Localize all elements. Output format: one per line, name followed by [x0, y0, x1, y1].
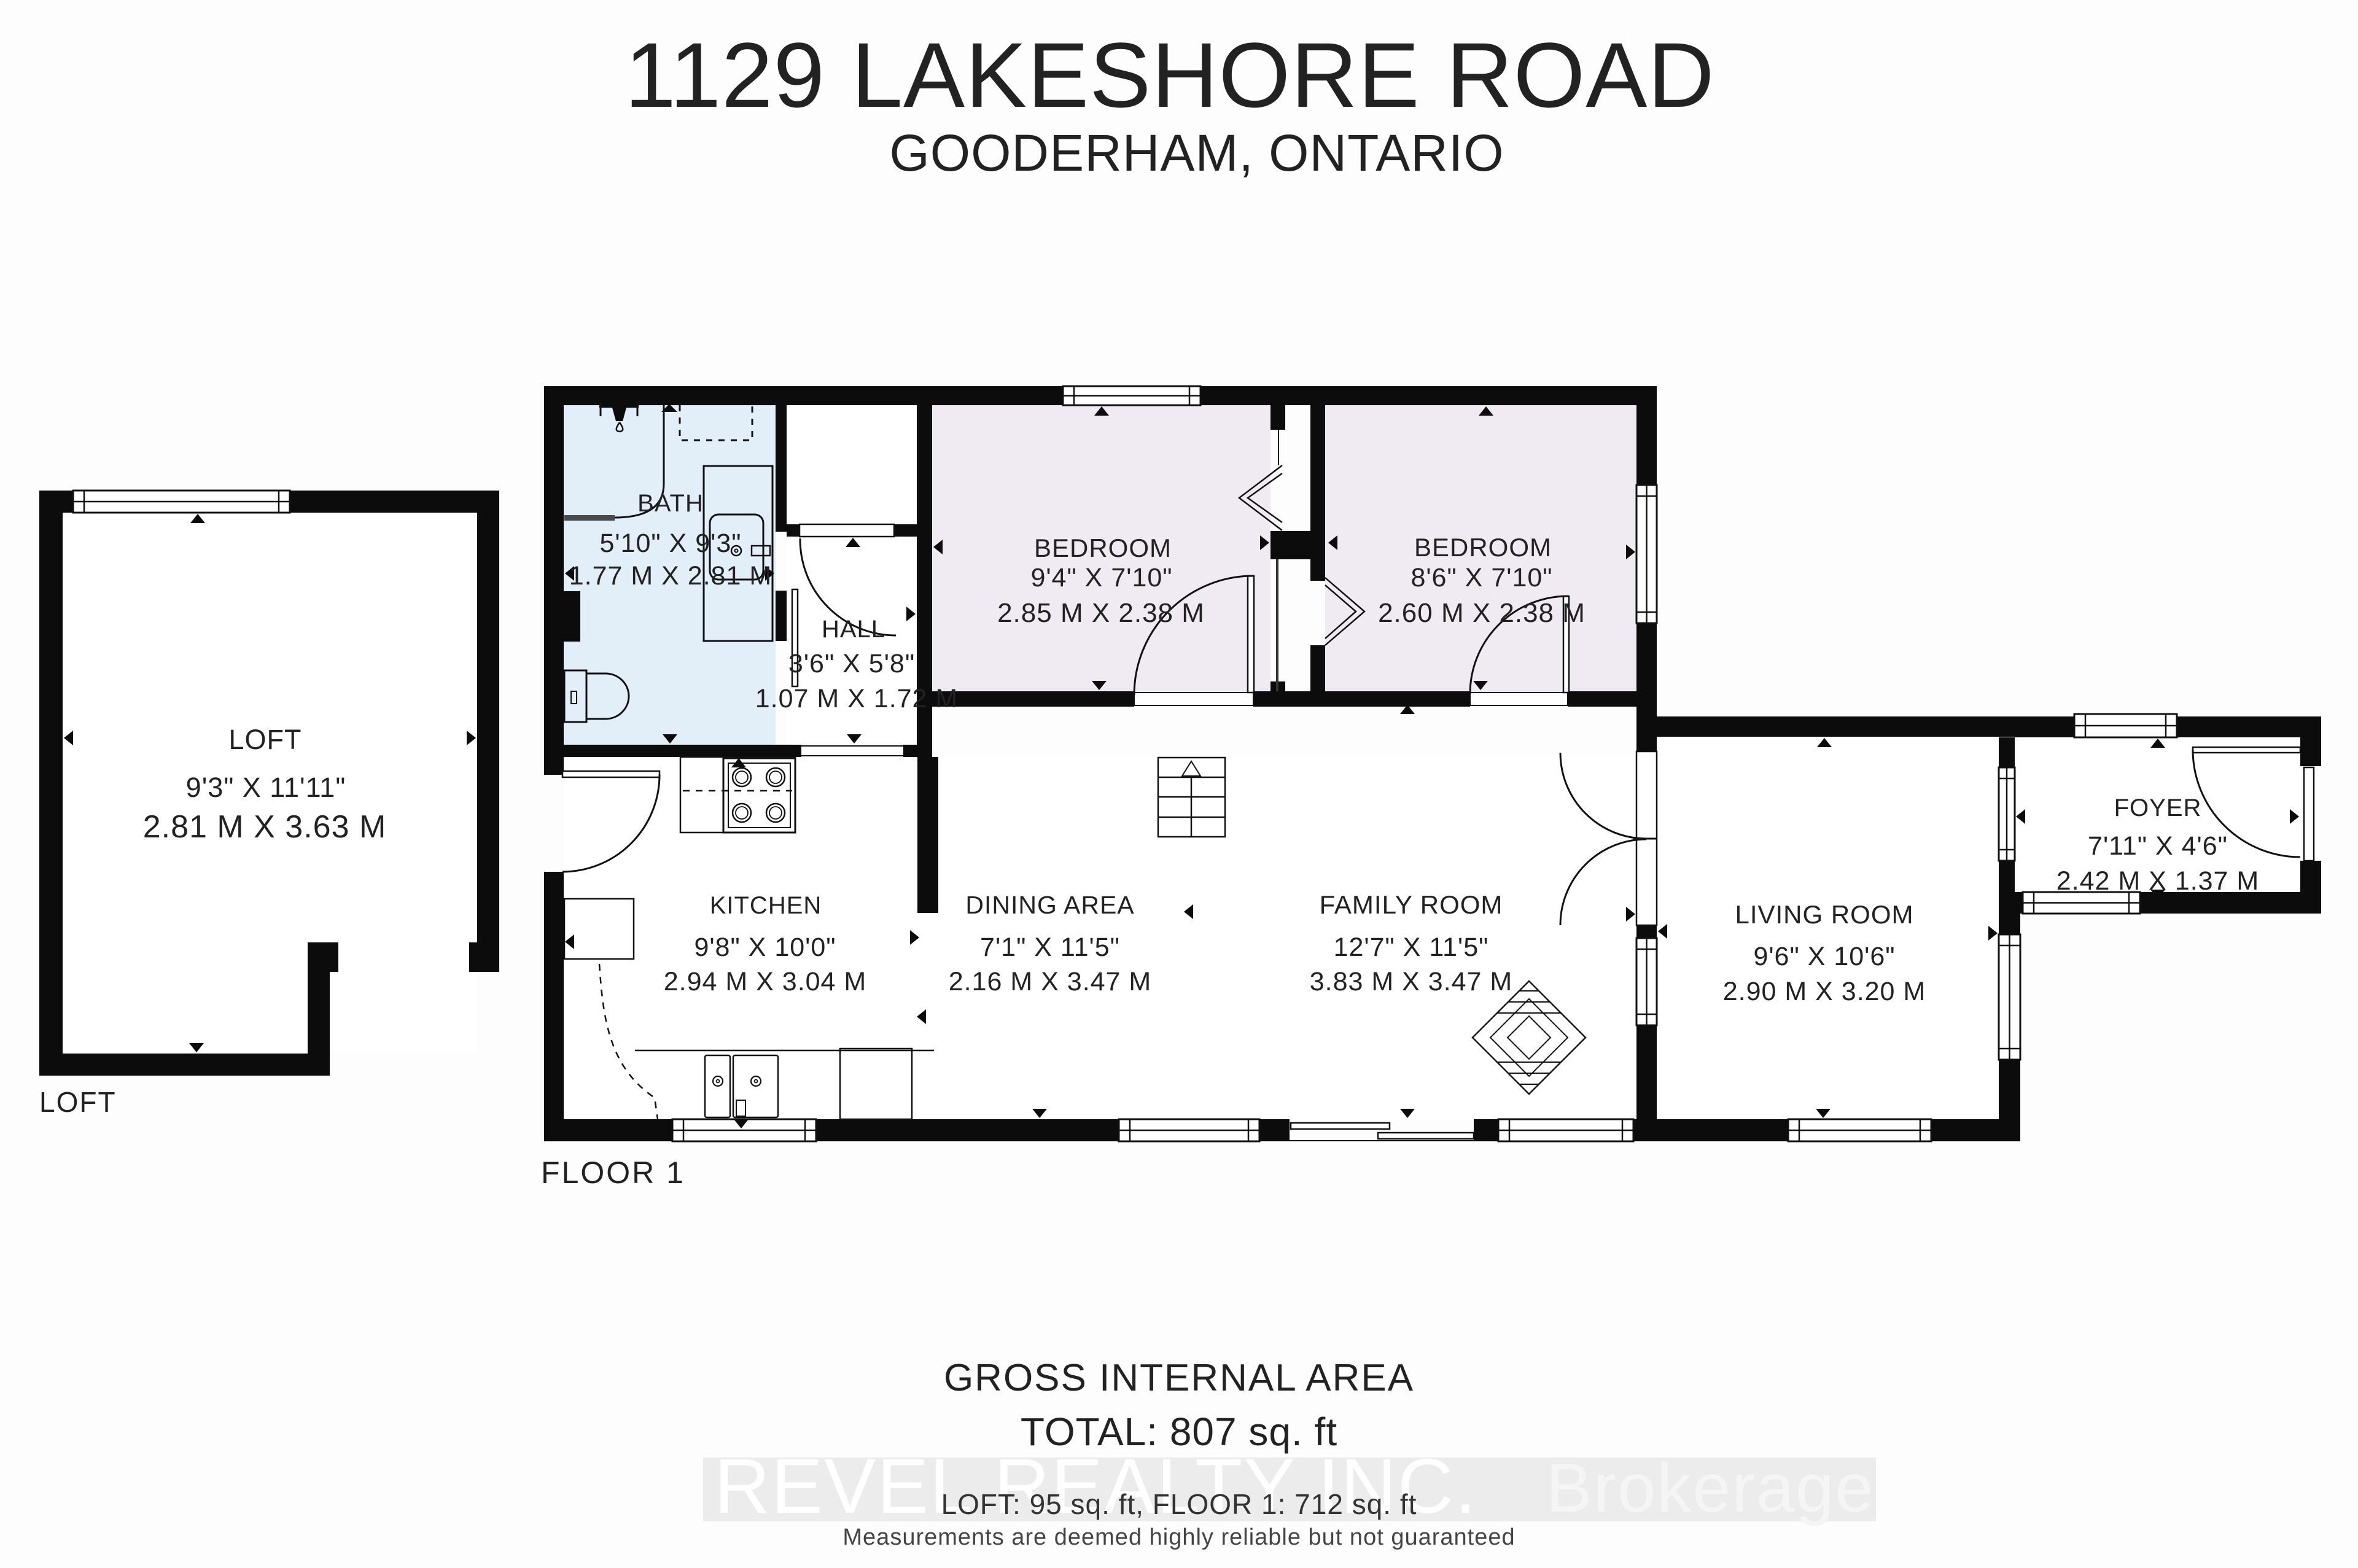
svg-text:GROSS INTERNAL AREA: GROSS INTERNAL AREA — [944, 1357, 1414, 1399]
svg-text:9'4" X 7'10": 9'4" X 7'10" — [1030, 563, 1172, 592]
svg-text:2.85 M X 2.38 M: 2.85 M X 2.38 M — [997, 598, 1205, 628]
svg-text:1.77 M X 2.81 M: 1.77 M X 2.81 M — [569, 561, 772, 591]
svg-text:DINING AREA: DINING AREA — [965, 891, 1134, 919]
svg-text:2.42 M X 1.37 M: 2.42 M X 1.37 M — [2056, 866, 2260, 896]
svg-text:GOODERHAM, ONTARIO: GOODERHAM, ONTARIO — [889, 124, 1504, 182]
svg-text:5'10" X 9'3": 5'10" X 9'3" — [599, 529, 741, 558]
svg-text:KITCHEN: KITCHEN — [710, 892, 822, 919]
svg-text:2.16 M X 3.47 M: 2.16 M X 3.47 M — [949, 967, 1152, 996]
svg-text:LOFT: LOFT — [39, 1086, 117, 1118]
svg-text:HALL: HALL — [822, 616, 885, 643]
svg-text:3'6" X 5'8": 3'6" X 5'8" — [788, 649, 915, 678]
svg-text:1129 LAKESHORE ROAD: 1129 LAKESHORE ROAD — [625, 23, 1714, 126]
svg-text:LOFT: LOFT — [228, 724, 302, 755]
svg-text:LIVING ROOM: LIVING ROOM — [1735, 900, 1913, 929]
svg-text:Brokerage: Brokerage — [1546, 1450, 1875, 1526]
svg-text:12'7" X 11'5": 12'7" X 11'5" — [1334, 933, 1489, 962]
svg-text:FAMILY ROOM: FAMILY ROOM — [1320, 890, 1503, 919]
svg-text:9'8" X 10'0": 9'8" X 10'0" — [694, 933, 836, 962]
svg-text:2.81 M X 3.63 M: 2.81 M X 3.63 M — [143, 809, 387, 845]
svg-text:9'6" X 10'6": 9'6" X 10'6" — [1753, 942, 1895, 971]
svg-text:8'6" X 7'10": 8'6" X 7'10" — [1411, 563, 1552, 592]
svg-text:2.90 M X 3.20 M: 2.90 M X 3.20 M — [1723, 977, 1926, 1006]
svg-text:BEDROOM: BEDROOM — [1034, 534, 1172, 562]
svg-text:LOFT: 95 sq. ft, FLOOR 1: 712: LOFT: 95 sq. ft, FLOOR 1: 712 sq. ft — [941, 1488, 1417, 1520]
svg-text:7'1" X 11'5": 7'1" X 11'5" — [980, 933, 1120, 962]
svg-text:BEDROOM: BEDROOM — [1414, 533, 1552, 562]
svg-text:FLOOR 1: FLOOR 1 — [541, 1155, 685, 1190]
svg-text:2.60 M X 2.38 M: 2.60 M X 2.38 M — [1378, 598, 1586, 628]
svg-text:Measurements are deemed highly: Measurements are deemed highly reliable … — [842, 1524, 1515, 1550]
svg-text:1.07 M X 1.72 M: 1.07 M X 1.72 M — [755, 684, 959, 713]
svg-text:BATH: BATH — [637, 490, 704, 517]
svg-text:FOYER: FOYER — [2114, 794, 2202, 821]
svg-text:2.94 M X 3.04 M: 2.94 M X 3.04 M — [664, 967, 867, 996]
svg-text:7'11" X 4'6": 7'11" X 4'6" — [2088, 831, 2228, 861]
svg-text:3.83 M X 3.47 M: 3.83 M X 3.47 M — [1310, 967, 1513, 996]
svg-text:9'3" X 11'11": 9'3" X 11'11" — [186, 772, 346, 803]
